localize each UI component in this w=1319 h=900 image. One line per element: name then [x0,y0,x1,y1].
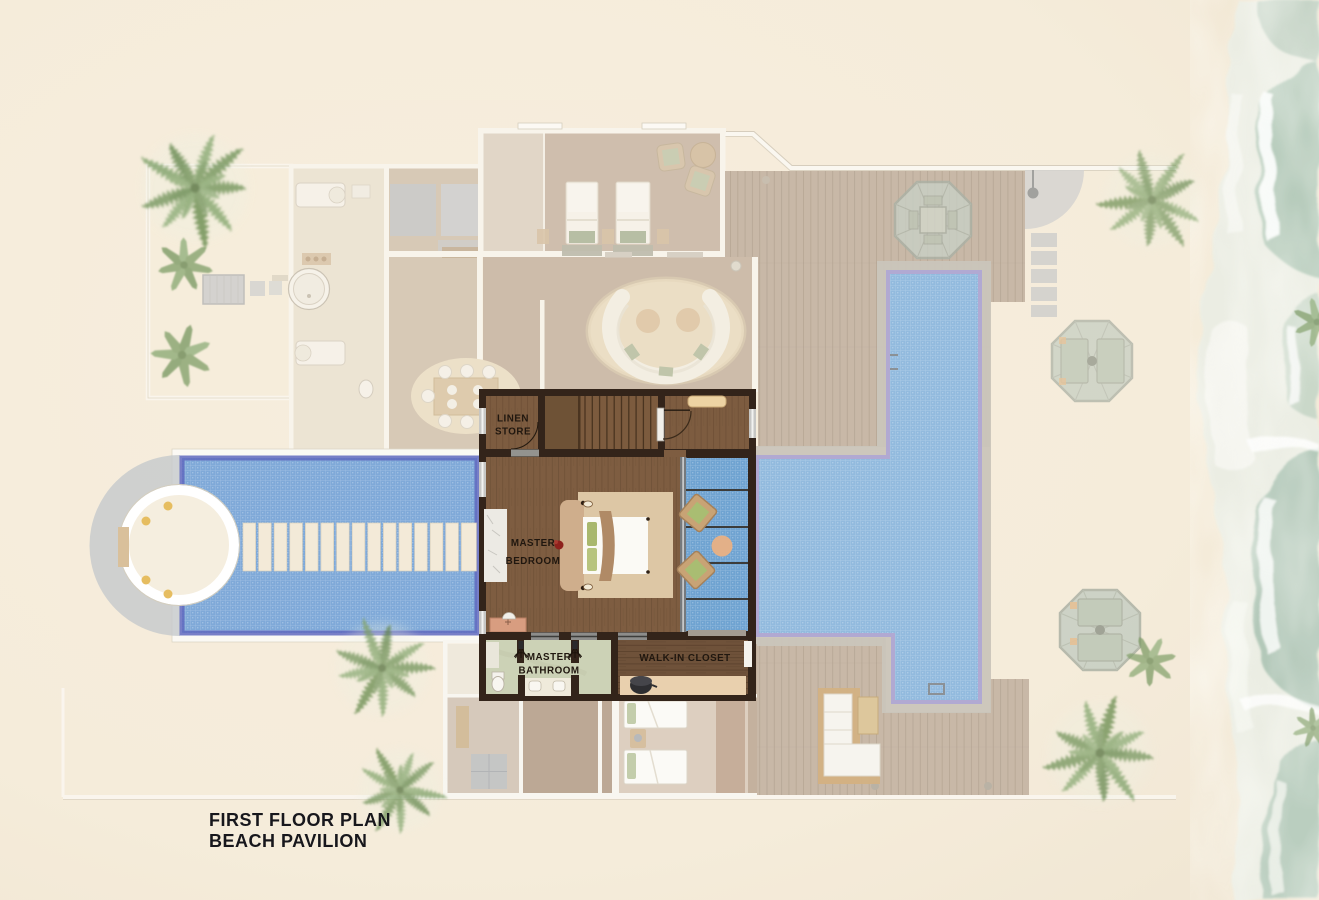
svg-text:MASTER: MASTER [511,538,555,549]
svg-text:FIRST FLOOR PLAN: FIRST FLOOR PLAN [209,810,391,830]
svg-text:MASTER: MASTER [527,652,571,663]
svg-text:BATHROOM: BATHROOM [519,666,580,677]
svg-text:WALK-IN CLOSET: WALK-IN CLOSET [639,653,730,664]
svg-text:STORE: STORE [495,427,531,438]
svg-text:BEACH PAVILION: BEACH PAVILION [209,831,367,851]
svg-text:BEDROOM: BEDROOM [506,556,561,567]
svg-text:LINEN: LINEN [497,414,529,425]
